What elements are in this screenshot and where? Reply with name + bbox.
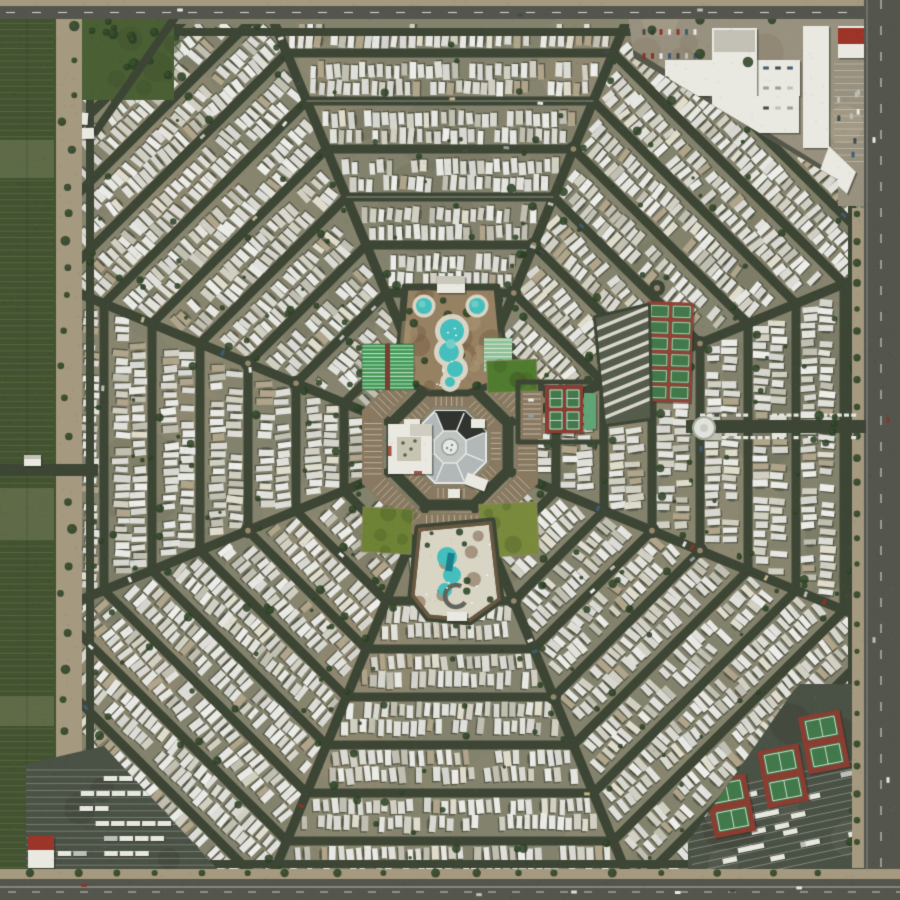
trailer-park-aerial-canvas	[0, 0, 900, 900]
satellite-photo-trailer-park	[0, 0, 900, 900]
